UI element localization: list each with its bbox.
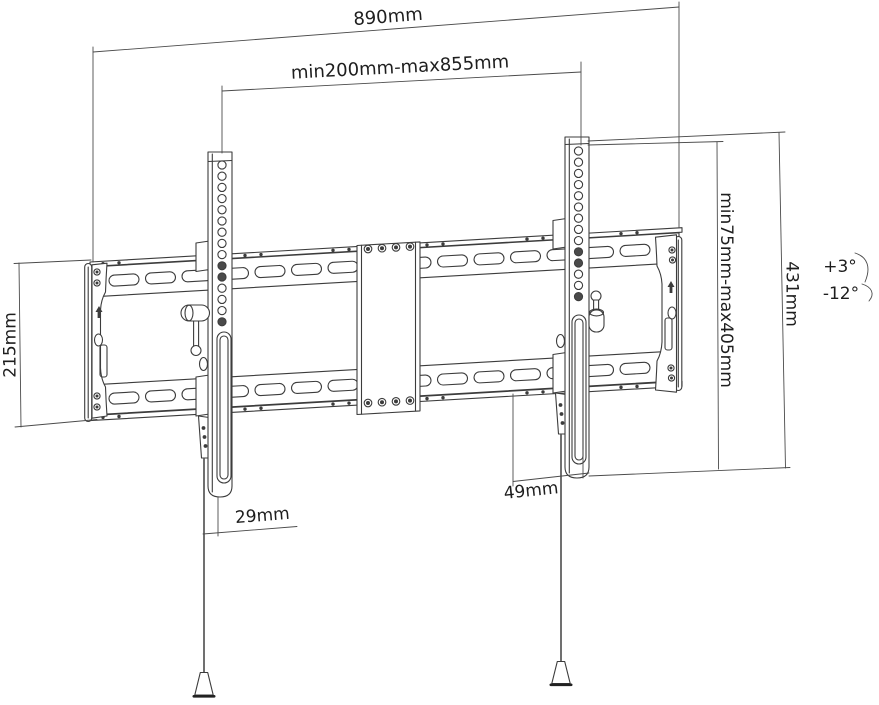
flange-screw bbox=[117, 261, 120, 264]
bracket-height-label: 431mm bbox=[782, 261, 802, 327]
vesa-hole bbox=[574, 293, 582, 301]
right-bracket-arm bbox=[553, 137, 604, 478]
vesa-hole bbox=[574, 259, 582, 267]
latch-screw bbox=[202, 426, 206, 430]
left-end-cap bbox=[85, 263, 107, 421]
vesa-hole bbox=[218, 217, 226, 225]
vesa-hole bbox=[218, 273, 226, 281]
left-bracket-arm bbox=[181, 152, 232, 497]
tilt-up-label: +3° bbox=[823, 257, 857, 277]
center-plate-body bbox=[357, 242, 420, 415]
left-cone-weight bbox=[195, 673, 213, 696]
tilt-down-arc-icon bbox=[862, 284, 872, 301]
flange-screw bbox=[117, 415, 120, 418]
dimension-plate-height: 215mm bbox=[1, 260, 98, 427]
dimension-vesa-width: min200mm-max855mm bbox=[222, 51, 581, 153]
right-tension-handle bbox=[589, 291, 604, 332]
vesa-hole bbox=[574, 248, 582, 256]
vesa-hole bbox=[574, 181, 582, 189]
vesa-hole bbox=[218, 161, 226, 169]
flange-screw bbox=[243, 407, 246, 410]
vesa-hole bbox=[574, 158, 582, 166]
dimension-arm-depth: 29mm bbox=[203, 497, 297, 536]
vesa-hole bbox=[218, 251, 226, 259]
left-tension-handle bbox=[181, 305, 210, 356]
vesa-hole bbox=[218, 262, 226, 270]
latch-screw bbox=[561, 421, 565, 425]
vesa-hole bbox=[574, 203, 582, 211]
dimension-overall-width: 890mm bbox=[93, 2, 679, 262]
bottom-offset-label: 49mm bbox=[503, 478, 560, 504]
flange-screw bbox=[331, 249, 334, 252]
vesa-hole bbox=[218, 183, 226, 191]
wall-mount-diagram: 890mm min200mm-max855mm 215mm min75mm-ma… bbox=[0, 0, 879, 705]
vesa-hole bbox=[574, 192, 582, 200]
flange-screw bbox=[635, 385, 638, 388]
tilt-up-arc-icon bbox=[855, 253, 868, 282]
tilt-annotation: +3° -12° bbox=[823, 253, 872, 304]
vesa-hole bbox=[574, 281, 582, 289]
vesa-hole bbox=[574, 147, 582, 155]
flange-screw bbox=[331, 402, 334, 405]
vesa-hole bbox=[574, 270, 582, 278]
dimension-bracket-height: 431mm bbox=[588, 132, 802, 476]
latch-screw bbox=[204, 444, 208, 448]
tilt-down-label: -12° bbox=[823, 284, 859, 304]
flange-screw bbox=[347, 248, 350, 251]
flange-screw bbox=[441, 396, 444, 399]
vesa-hole bbox=[218, 195, 226, 203]
arm-depth-label: 29mm bbox=[234, 504, 290, 528]
vesa-hole bbox=[574, 169, 582, 177]
right-cone-weight bbox=[552, 662, 570, 684]
vesa-hole bbox=[218, 228, 226, 236]
flange-screw bbox=[541, 237, 544, 240]
vesa-hole bbox=[218, 172, 226, 180]
vesa-hole bbox=[218, 307, 226, 315]
vesa-hole bbox=[218, 318, 226, 326]
technical-drawing: 890mm min200mm-max855mm 215mm min75mm-ma… bbox=[0, 0, 879, 705]
vesa-hole bbox=[218, 284, 226, 292]
flange-screw bbox=[425, 397, 428, 400]
vesa-hole bbox=[574, 237, 582, 245]
latch-screw bbox=[560, 412, 564, 416]
flange-screw bbox=[425, 243, 428, 246]
center-vesa-plate bbox=[357, 242, 420, 415]
flange-screw bbox=[243, 254, 246, 257]
vesa-hole bbox=[574, 214, 582, 222]
vesa-hole bbox=[574, 225, 582, 233]
latch-screw bbox=[203, 435, 207, 439]
flange-screw bbox=[347, 401, 350, 404]
flange-screw bbox=[525, 391, 528, 394]
flange-screw bbox=[635, 231, 638, 234]
overall-width-label: 890mm bbox=[353, 4, 424, 30]
left-hinge bbox=[200, 358, 208, 371]
flange-screw bbox=[525, 237, 528, 240]
vesa-height-label: min75mm-max405mm bbox=[716, 192, 736, 388]
vesa-hole bbox=[218, 206, 226, 214]
flange-screw bbox=[619, 232, 622, 235]
vesa-hole bbox=[218, 295, 226, 303]
vesa-width-label: min200mm-max855mm bbox=[290, 51, 509, 83]
flange-screw bbox=[619, 386, 622, 389]
left-arm-vesa-holes bbox=[218, 161, 226, 326]
right-end-cap bbox=[656, 235, 682, 392]
flange-screw bbox=[259, 253, 262, 256]
flange-screw bbox=[441, 242, 444, 245]
vesa-hole bbox=[218, 239, 226, 247]
flange-screw bbox=[541, 390, 544, 393]
latch-screw bbox=[559, 403, 563, 407]
plate-height-label: 215mm bbox=[1, 312, 21, 378]
flange-screw bbox=[259, 407, 262, 410]
right-hinge bbox=[557, 335, 565, 348]
